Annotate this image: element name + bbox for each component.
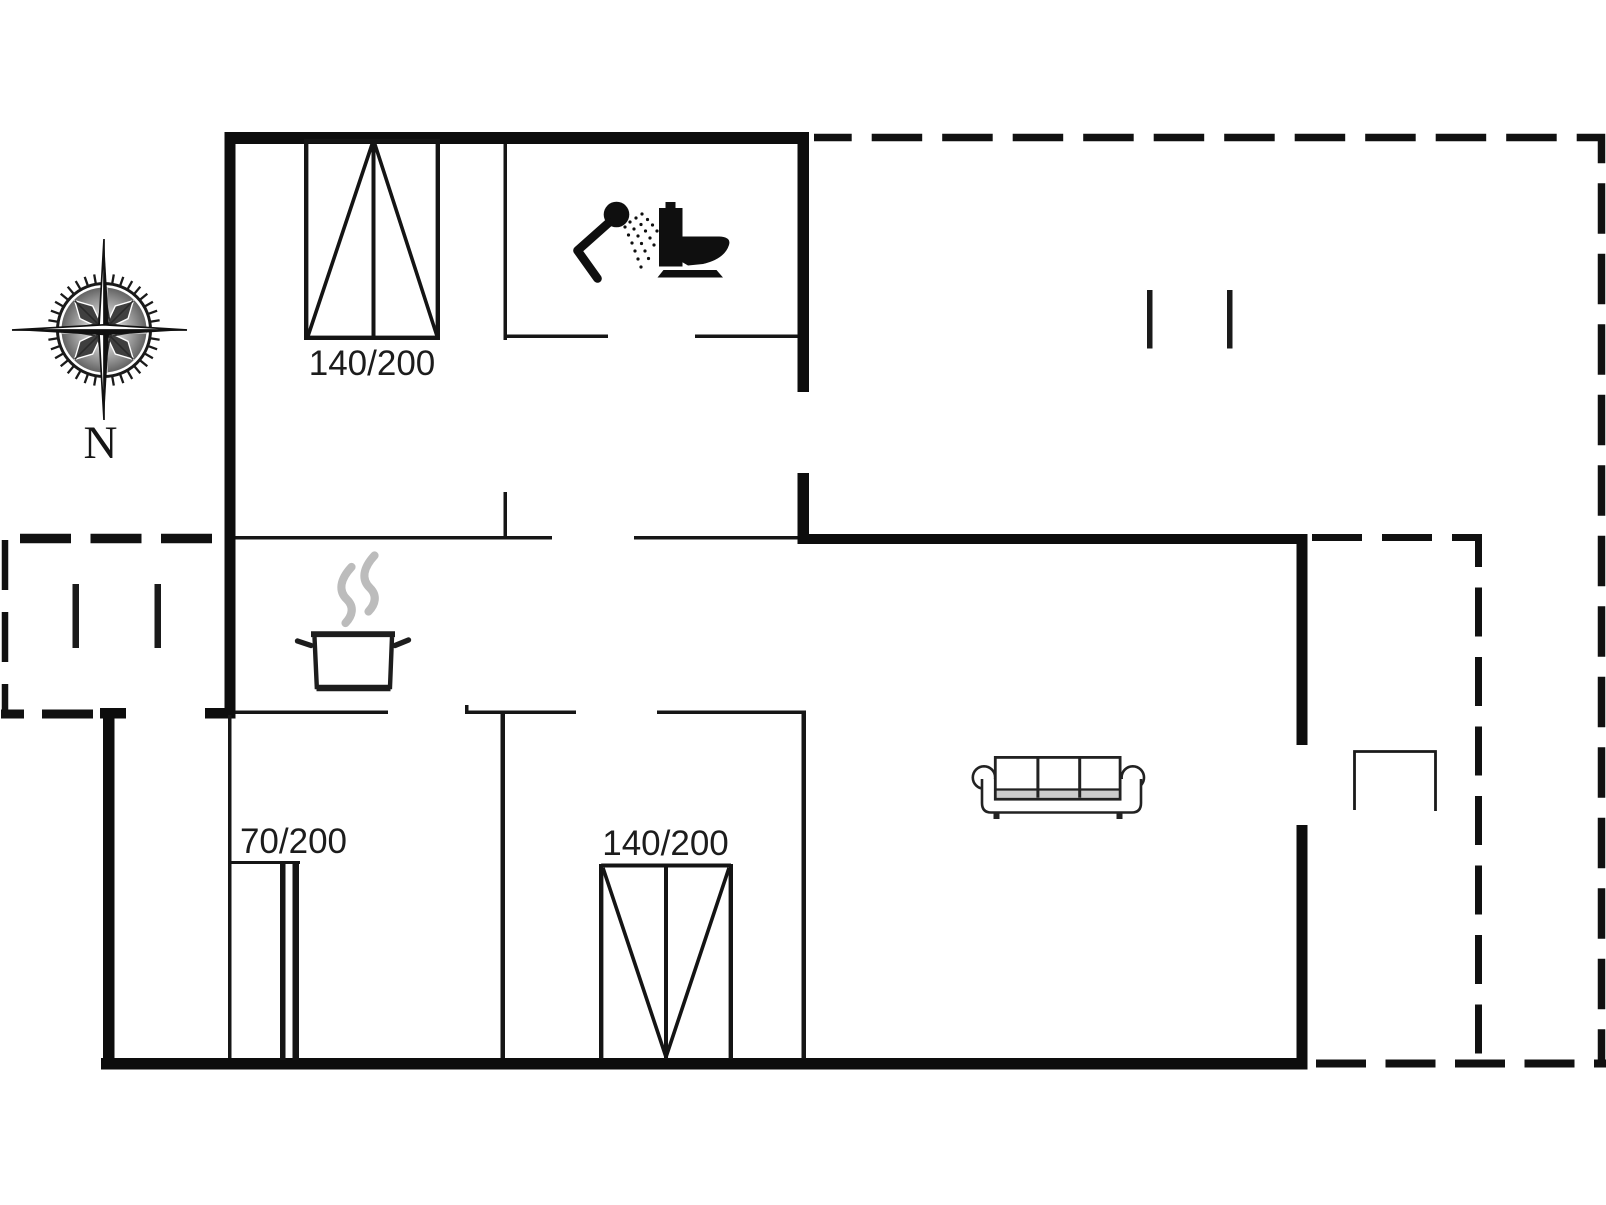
svg-text:140/200: 140/200 [602,824,729,863]
svg-text:140/200: 140/200 [309,344,436,383]
svg-text:N: N [84,417,118,469]
svg-text:70/200: 70/200 [240,822,347,861]
